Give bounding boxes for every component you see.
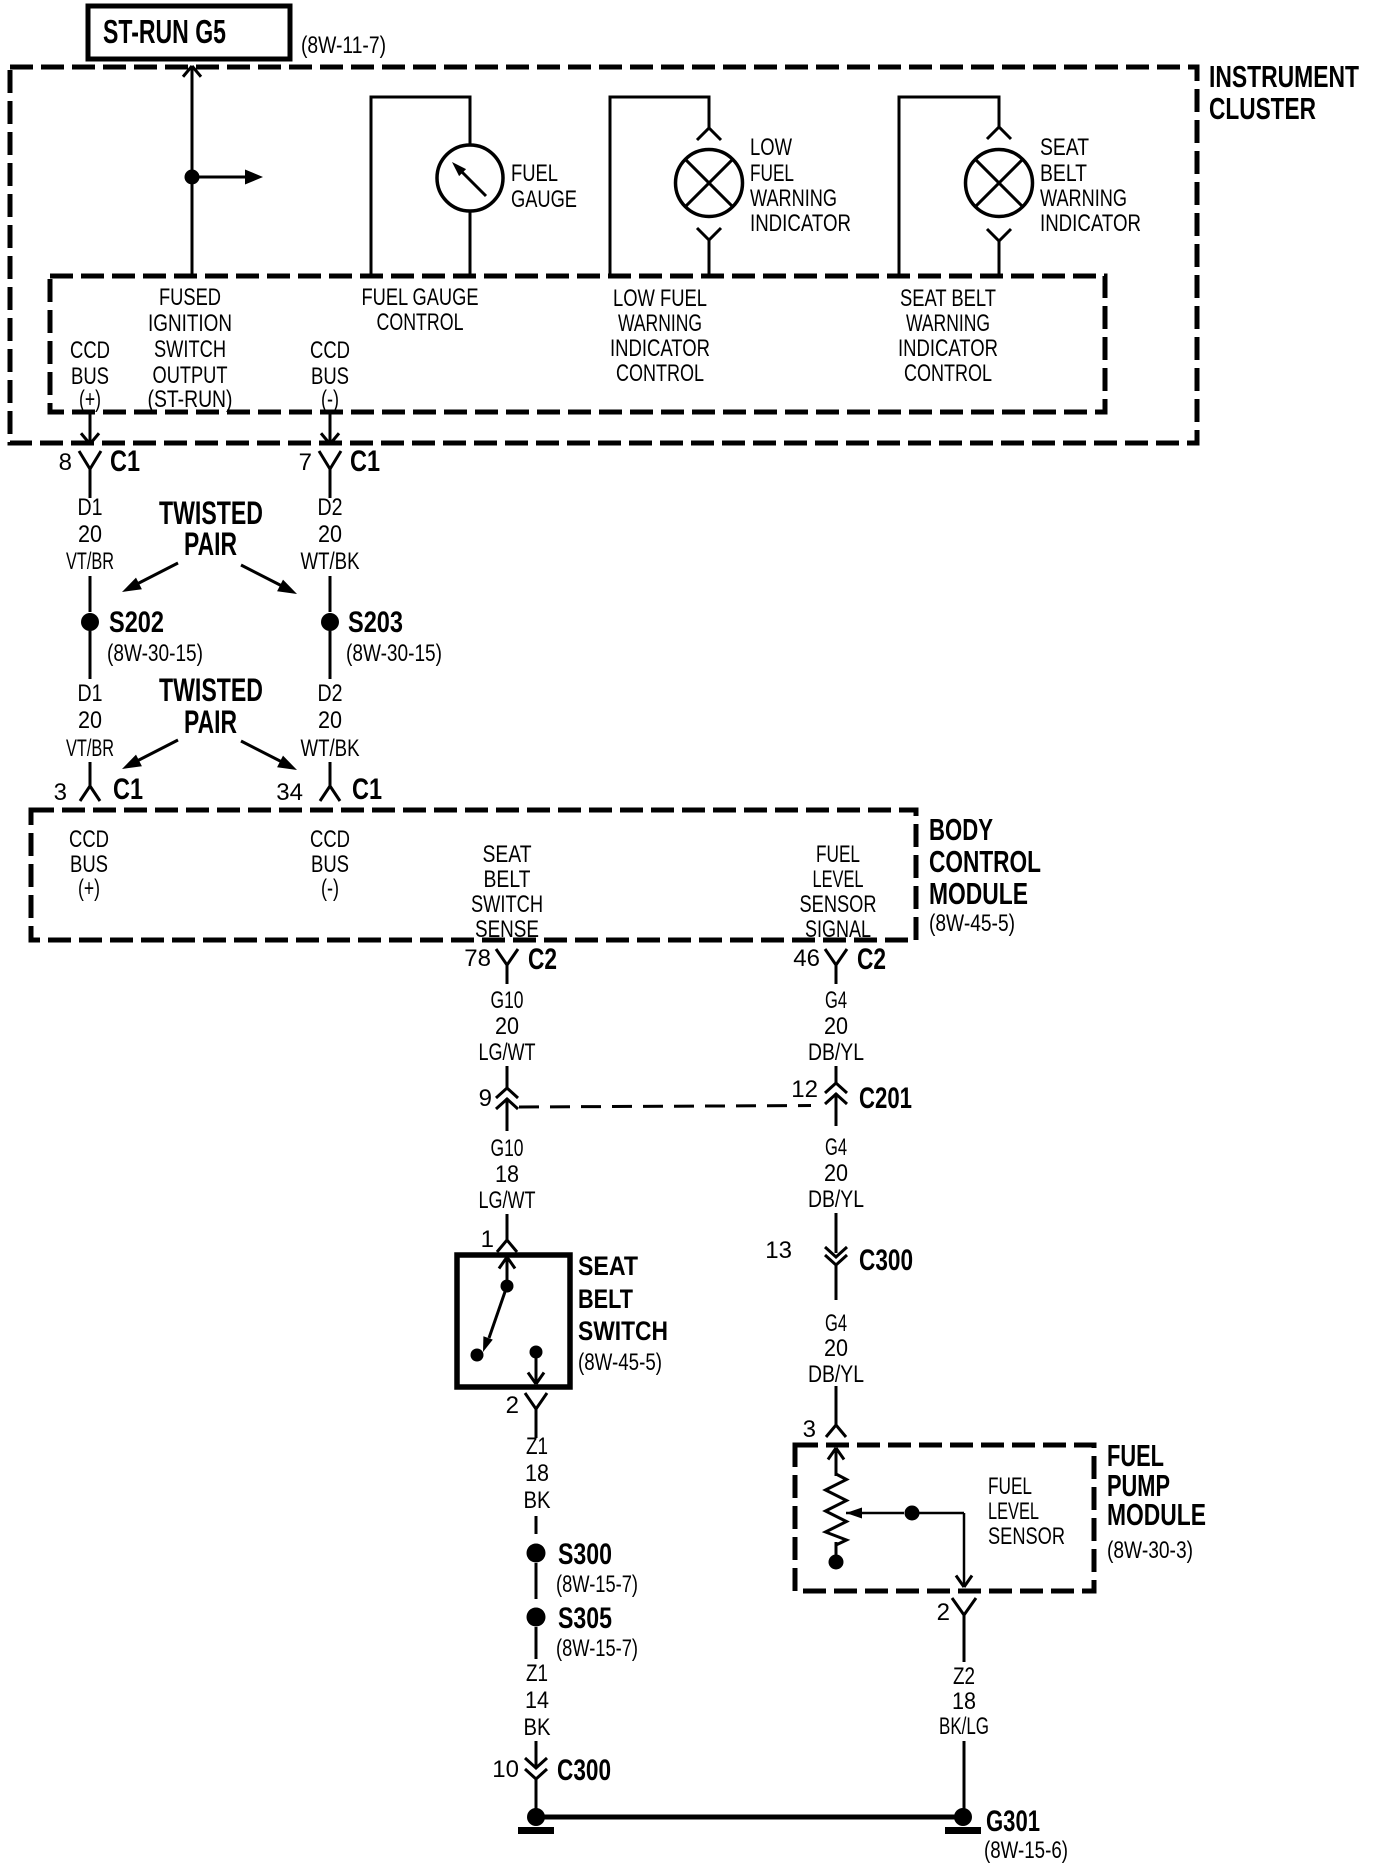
svg-text:DB/YL: DB/YL — [808, 1186, 864, 1213]
svg-text:(+): (+) — [79, 386, 101, 413]
svg-text:78: 78 — [464, 945, 491, 972]
svg-text:VT/BR: VT/BR — [66, 548, 114, 575]
svg-text:PAIR: PAIR — [184, 526, 237, 562]
svg-text:20: 20 — [495, 1013, 519, 1040]
svg-text:SENSE: SENSE — [475, 916, 539, 943]
svg-text:WT/BK: WT/BK — [301, 735, 360, 762]
svg-text:CCD: CCD — [310, 826, 350, 853]
svg-text:(8W-30-15): (8W-30-15) — [346, 640, 442, 667]
svg-text:(8W-30-3): (8W-30-3) — [1107, 1537, 1193, 1564]
svg-text:SENSOR: SENSOR — [988, 1523, 1065, 1550]
svg-text:OUTPUT: OUTPUT — [153, 362, 228, 389]
svg-text:(ST-RUN): (ST-RUN) — [148, 386, 233, 413]
svg-text:S305: S305 — [558, 1602, 612, 1635]
svg-text:G301: G301 — [986, 1805, 1040, 1838]
svg-text:C300: C300 — [859, 1244, 913, 1277]
svg-text:BUS: BUS — [311, 851, 349, 878]
svg-text:S300: S300 — [558, 1538, 612, 1571]
svg-text:C2: C2 — [857, 943, 886, 976]
svg-text:CONTROL: CONTROL — [377, 309, 464, 336]
svg-text:LEVEL: LEVEL — [988, 1498, 1039, 1525]
svg-text:LEVEL: LEVEL — [813, 866, 864, 893]
svg-text:FUEL GAUGE: FUEL GAUGE — [362, 284, 479, 311]
svg-text:C1: C1 — [110, 445, 140, 478]
svg-text:14: 14 — [525, 1687, 549, 1714]
svg-text:WT/BK: WT/BK — [301, 548, 360, 575]
svg-text:BK: BK — [524, 1714, 551, 1741]
svg-text:PAIR: PAIR — [184, 704, 237, 740]
svg-text:Z1: Z1 — [526, 1660, 548, 1687]
svg-text:IGNITION: IGNITION — [148, 310, 232, 337]
svg-text:INDICATOR: INDICATOR — [1040, 210, 1141, 237]
svg-text:18: 18 — [495, 1161, 519, 1188]
svg-text:S202: S202 — [109, 606, 164, 639]
svg-text:FUSED: FUSED — [159, 284, 221, 311]
svg-text:INDICATOR: INDICATOR — [610, 335, 710, 362]
svg-text:C1: C1 — [113, 773, 143, 806]
svg-text:18: 18 — [952, 1688, 976, 1715]
svg-text:CCD: CCD — [69, 826, 109, 853]
svg-text:C300: C300 — [557, 1754, 611, 1787]
svg-text:BELT: BELT — [484, 866, 531, 893]
svg-text:C201: C201 — [859, 1082, 912, 1115]
svg-text:(8W-11-7): (8W-11-7) — [301, 32, 386, 59]
svg-text:9: 9 — [479, 1085, 492, 1112]
svg-text:MODULE: MODULE — [1107, 1497, 1206, 1532]
svg-text:7: 7 — [299, 449, 312, 476]
svg-text:BUS: BUS — [70, 851, 108, 878]
svg-text:20: 20 — [78, 707, 102, 734]
svg-text:CONTROL: CONTROL — [616, 360, 704, 387]
svg-text:LOW FUEL: LOW FUEL — [613, 285, 707, 312]
svg-text:20: 20 — [824, 1013, 848, 1040]
svg-text:S203: S203 — [348, 606, 403, 639]
svg-text:G4: G4 — [825, 1134, 847, 1161]
svg-text:C2: C2 — [528, 943, 557, 976]
svg-text:TWISTED: TWISTED — [159, 672, 263, 708]
svg-text:G4: G4 — [825, 1310, 847, 1337]
svg-text:10: 10 — [492, 1756, 519, 1783]
svg-text:(8W-45-5): (8W-45-5) — [929, 910, 1015, 937]
svg-text:3: 3 — [54, 779, 67, 806]
svg-text:WARNING: WARNING — [906, 310, 990, 337]
svg-text:SEAT BELT: SEAT BELT — [900, 285, 996, 312]
svg-text:20: 20 — [824, 1335, 848, 1362]
svg-text:INDICATOR: INDICATOR — [750, 210, 851, 237]
svg-text:SEAT: SEAT — [1040, 134, 1089, 161]
svg-text:SWITCH: SWITCH — [154, 336, 226, 363]
svg-text:CCD: CCD — [310, 337, 350, 364]
svg-text:20: 20 — [318, 707, 342, 734]
svg-text:13: 13 — [765, 1237, 792, 1264]
svg-text:(+): (+) — [78, 875, 100, 902]
svg-text:BELT: BELT — [1040, 160, 1087, 187]
svg-text:LOW: LOW — [750, 134, 792, 161]
svg-text:G4: G4 — [825, 987, 847, 1014]
svg-text:12: 12 — [791, 1076, 818, 1103]
svg-text:SEAT: SEAT — [578, 1251, 638, 1281]
svg-text:3: 3 — [803, 1416, 816, 1443]
svg-text:2: 2 — [937, 1599, 950, 1626]
svg-text:FUEL: FUEL — [750, 160, 794, 187]
svg-text:C1: C1 — [350, 445, 380, 478]
svg-text:D2: D2 — [318, 494, 343, 521]
svg-text:INDICATOR: INDICATOR — [898, 335, 998, 362]
svg-text:WARNING: WARNING — [618, 310, 702, 337]
svg-text:CONTROL: CONTROL — [929, 844, 1041, 879]
svg-text:1: 1 — [481, 1226, 494, 1253]
svg-text:20: 20 — [78, 521, 102, 548]
svg-text:INSTRUMENT: INSTRUMENT — [1209, 59, 1359, 94]
svg-text:SWITCH: SWITCH — [471, 891, 543, 918]
svg-text:SENSOR: SENSOR — [800, 891, 877, 918]
svg-text:ST-RUN G5: ST-RUN G5 — [103, 13, 226, 50]
svg-text:(8W-15-6): (8W-15-6) — [984, 1837, 1068, 1864]
svg-text:D1: D1 — [78, 494, 103, 521]
svg-text:FUEL: FUEL — [988, 1473, 1032, 1500]
svg-text:SEAT: SEAT — [483, 841, 532, 868]
svg-text:DB/YL: DB/YL — [808, 1039, 864, 1066]
svg-text:(8W-45-5): (8W-45-5) — [578, 1349, 662, 1376]
svg-text:BK/LG: BK/LG — [939, 1713, 989, 1740]
svg-text:(8W-15-7): (8W-15-7) — [556, 1635, 638, 1662]
svg-text:(-): (-) — [321, 386, 339, 413]
svg-text:G10: G10 — [491, 987, 524, 1014]
svg-text:DB/YL: DB/YL — [808, 1361, 864, 1388]
svg-text:WARNING: WARNING — [750, 185, 837, 212]
svg-text:FUEL: FUEL — [511, 160, 558, 187]
svg-text:BODY: BODY — [929, 812, 993, 847]
svg-text:(8W-30-15): (8W-30-15) — [107, 640, 203, 667]
svg-text:C1: C1 — [352, 773, 382, 806]
svg-text:SWITCH: SWITCH — [578, 1316, 668, 1346]
svg-text:CLUSTER: CLUSTER — [1209, 91, 1316, 126]
svg-text:GAUGE: GAUGE — [511, 186, 577, 213]
svg-text:8: 8 — [59, 449, 72, 476]
svg-text:LG/WT: LG/WT — [479, 1187, 536, 1214]
svg-text:CONTROL: CONTROL — [904, 360, 992, 387]
svg-text:Z1: Z1 — [526, 1433, 548, 1460]
svg-text:Z2: Z2 — [953, 1663, 975, 1690]
svg-text:(8W-15-7): (8W-15-7) — [556, 1571, 638, 1598]
svg-text:MODULE: MODULE — [929, 876, 1028, 911]
svg-text:VT/BR: VT/BR — [66, 735, 114, 762]
svg-text:20: 20 — [318, 521, 342, 548]
svg-text:WARNING: WARNING — [1040, 185, 1127, 212]
svg-text:D2: D2 — [318, 680, 343, 707]
svg-text:BK: BK — [524, 1487, 551, 1514]
svg-text:34: 34 — [276, 779, 303, 806]
svg-text:46: 46 — [793, 945, 820, 972]
svg-text:BELT: BELT — [578, 1284, 633, 1314]
svg-text:D1: D1 — [78, 680, 103, 707]
svg-text:20: 20 — [824, 1160, 848, 1187]
svg-text:18: 18 — [525, 1460, 549, 1487]
svg-text:(-): (-) — [321, 875, 339, 902]
svg-text:2: 2 — [506, 1392, 519, 1419]
svg-text:G10: G10 — [491, 1135, 524, 1162]
svg-text:SIGNAL: SIGNAL — [805, 916, 871, 943]
svg-text:LG/WT: LG/WT — [479, 1039, 536, 1066]
svg-text:CCD: CCD — [70, 337, 110, 364]
svg-text:FUEL: FUEL — [816, 841, 860, 868]
